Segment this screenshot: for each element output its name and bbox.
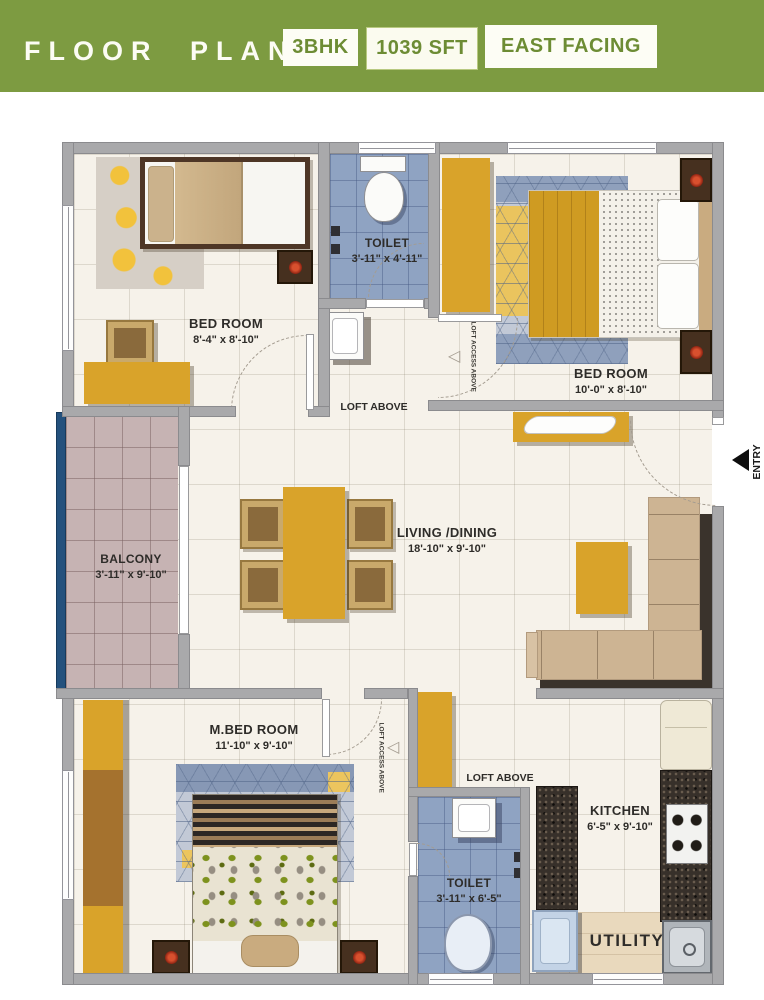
toilet1-shower-tap [331, 226, 340, 236]
wall-toilet2-top [408, 787, 530, 797]
toilet1-wc-bowl [364, 172, 404, 222]
tv-console [513, 412, 629, 442]
mbed-wardrobe-bottom [83, 906, 123, 973]
dining-chair [347, 499, 393, 549]
dining-chair [347, 560, 393, 610]
toilet1-label: TOILET 3'-11" x 4'-11" [352, 236, 423, 266]
rug-patch [176, 764, 354, 792]
bedroom2-nightstand-top [680, 158, 712, 202]
wall-kitchen-top [536, 688, 724, 699]
badge-facing: EAST FACING [485, 25, 657, 68]
sofa-armrest [526, 632, 538, 678]
toilet2-door [409, 843, 417, 876]
loft-access-triangle-1: ◁ [448, 349, 460, 365]
toilet2-label: TOILET 3'-11" x 6'-5" [436, 876, 501, 906]
mbed-bed-blanket [193, 847, 337, 941]
dining-table [283, 487, 345, 619]
wall-right-lower [712, 506, 724, 985]
entry-door [712, 417, 724, 425]
utility-label: UTILITY [590, 930, 665, 952]
bedroom1-bed [140, 157, 310, 249]
wall-toilet1-bottom-a [318, 298, 366, 309]
flower-decor [353, 951, 366, 964]
kitchen-label: KITCHEN 6'-5" x 9'-10" [587, 803, 653, 834]
washing-machine-door [540, 918, 570, 964]
window-bedroom1 [62, 205, 74, 351]
mbed-door [322, 699, 330, 757]
corridor-cabinet [418, 692, 452, 788]
dining-chair-seat [248, 507, 278, 541]
bedroom2-label: BED ROOM 10'-0" x 8'-10" [574, 366, 648, 397]
loft-above-note-2: LOFT ABOVE [466, 772, 533, 784]
wall-toilet2-right [520, 787, 530, 985]
wash-basin-bowl [332, 318, 358, 354]
bedroom1-chair [106, 320, 154, 366]
page-title: FLOOR PLAN [24, 36, 296, 67]
bedroom2-nightstand-bottom [680, 330, 712, 374]
mbed-nightstand-right [340, 940, 378, 974]
wall-balcony-right-a [178, 406, 190, 466]
mbed-wardrobe-mid [83, 770, 123, 906]
dining-chair [240, 560, 286, 610]
dining-chair-seat [248, 568, 278, 602]
bedroom2-bed-blanket [529, 191, 599, 337]
dining-chair [240, 499, 286, 549]
bedroom2-bed [528, 190, 712, 338]
toilet2-basin [452, 798, 496, 838]
flower-decor [690, 346, 703, 359]
dining-chair-seat [355, 507, 385, 541]
bedroom1-bed-blanket [175, 162, 243, 244]
mbed-wardrobe-shadow [123, 700, 129, 973]
window-mbed [62, 770, 74, 900]
badge-bhk: 3BHK [283, 29, 358, 66]
flower-decor [165, 951, 178, 964]
bedroom1-nightstand [277, 250, 313, 284]
fridge-door-line [665, 727, 707, 728]
loft-above-note-1: LOFT ABOVE [340, 401, 407, 413]
window-bedroom2 [507, 142, 657, 154]
kitchen-counter-left [536, 786, 578, 910]
balcony-label: BALCONY 3'-11" x 9'-10" [95, 552, 166, 582]
bedroom1-door [306, 334, 314, 410]
mbed-label: M.BED ROOM 11'-10" x 9'-10" [210, 722, 299, 753]
entry-label: ENTRY [751, 437, 763, 487]
wall-bedroom1-bottom-a [62, 406, 236, 417]
header-bar: FLOOR PLAN 3BHK 1039 SFT EAST FACING [0, 0, 764, 92]
flower-decor [289, 261, 302, 274]
coffee-table [576, 542, 628, 614]
wall-bedroom2-left [428, 142, 440, 318]
wall-right-upper [712, 142, 724, 419]
loft-access-triangle-2: ◁ [387, 740, 399, 756]
window-toilet1 [358, 142, 436, 154]
dining-chair-seat [355, 568, 385, 602]
bedroom1-chair-seat [114, 328, 146, 358]
balcony-railing [56, 412, 66, 694]
wall-mbed-top-b [364, 688, 408, 699]
kitchen-sink [662, 920, 712, 974]
badge-area: 1039 SFT [366, 27, 478, 70]
living-dining-label: LIVING /DINING 18'-10" x 9'-10" [397, 525, 497, 556]
washing-machine [532, 910, 578, 972]
entry-door-arc [630, 419, 717, 506]
wall-mbed-right-b [408, 876, 418, 985]
mbed-bed [192, 794, 338, 974]
flower-decor [690, 174, 703, 187]
mbed-door-arc [326, 699, 382, 755]
gas-stove [666, 804, 708, 864]
wall-mbed-top-a [56, 688, 322, 699]
bedroom1-desk [84, 362, 190, 404]
mbed-bed-pillow [241, 935, 299, 967]
window-utility [592, 973, 664, 985]
wall-bedroom1-right [318, 142, 330, 416]
toilet1-shower-tap2 [331, 244, 340, 254]
toilet1-door [366, 299, 424, 308]
rug-patch [328, 772, 350, 792]
entry-arrow-icon [732, 449, 749, 471]
mbed-nightstand-left [152, 940, 190, 974]
window-toilet2 [428, 973, 494, 985]
bedroom2-pillow [657, 199, 699, 261]
sink-drain [683, 943, 696, 956]
mbed-wardrobe-top [83, 700, 123, 770]
toilet2-basin-bowl [458, 804, 490, 832]
floor-plan-page: FLOOR PLAN 3BHK 1039 SFT EAST FACING [0, 0, 764, 1000]
wash-basin [326, 312, 364, 360]
sofa-horizontal [536, 630, 702, 680]
sofa-vertical [648, 497, 700, 633]
bedroom2-headboard [699, 193, 712, 337]
bedroom2-wardrobe [442, 158, 490, 312]
tv [520, 416, 620, 434]
loft-access-note-1: LOFT ACCESS ABOVE [470, 322, 477, 382]
toilet2-door-arc [417, 843, 450, 876]
wall-mbed-right-a [408, 688, 418, 842]
wall-bedroom2-bottom [428, 400, 724, 411]
bedroom1-label: BED ROOM 8'-4" x 8'-10" [189, 316, 263, 347]
toilet2-wc-bowl [444, 914, 492, 972]
balcony-sliding-door [179, 466, 189, 634]
loft-access-note-2: LOFT ACCESS ABOVE [378, 723, 385, 787]
bedroom1-bed-pillow [148, 166, 174, 242]
toilet1-wc-tank [360, 156, 406, 172]
fridge [660, 700, 712, 770]
mbed-bed-headboard [193, 795, 337, 847]
bedroom2-pillow2 [657, 263, 699, 329]
